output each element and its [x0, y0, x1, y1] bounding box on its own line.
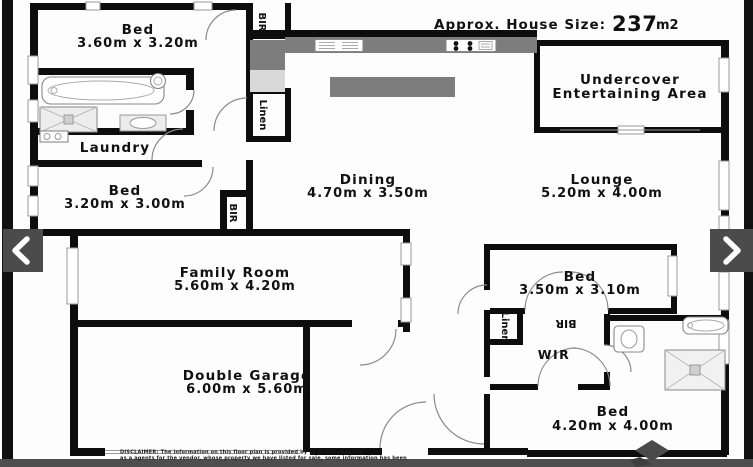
toilet-icon [614, 326, 644, 352]
room-label-laundry: Laundry [80, 140, 150, 156]
basin-icon [151, 74, 166, 89]
house-size-unit: m2 [656, 18, 679, 33]
room-label-bed4: Bed [597, 404, 630, 420]
ensuite-bath-icon [683, 317, 728, 334]
ensuite-shower-icon [665, 350, 725, 390]
floorplan-viewer: Approx. House Size: 237 m2 Bed 3.60m x 3… [0, 0, 753, 467]
house-size-label: Approx. House Size: [434, 17, 606, 33]
sink-icon [315, 40, 363, 52]
room-dims-dining: 4.70m x 3.50m [307, 186, 429, 201]
kitchen-fixtures [250, 37, 537, 97]
room-dims-bed3: 3.50m x 3.10m [519, 283, 641, 298]
disclaimer-line2: as a agents for the vendor, whose proper… [120, 456, 407, 462]
closet-label-linen-bed3: Linen [499, 312, 510, 343]
room-dims-bed4: 4.20m x 4.00m [552, 419, 674, 434]
prev-button[interactable] [3, 229, 43, 272]
closet-label-bir-bed2: BIR [227, 203, 238, 222]
room-dims-bed1: 3.60m x 3.20m [77, 36, 199, 51]
ensuite-fixtures [614, 317, 728, 390]
house-size-value: 237 [612, 12, 657, 36]
room-label-wir: WIR [538, 347, 571, 362]
room-dims-bed2: 3.20m x 3.00m [64, 197, 186, 212]
closet-label-linen-top: Linen [257, 100, 268, 131]
room-label-undercover-2: Entertaining Area [552, 86, 707, 102]
cooktop-icon [446, 40, 496, 52]
closet-label-bir-top: BIR [256, 12, 267, 31]
room-dims-garage: 6.00m x 5.60m [186, 382, 308, 397]
closet-label-bir-bed3: BIR [555, 317, 576, 330]
room-dims-family: 5.60m x 4.20m [174, 279, 296, 294]
wc-icon [40, 131, 68, 142]
shower-icon [40, 107, 97, 132]
next-button[interactable] [710, 229, 753, 272]
room-dims-lounge: 5.20m x 4.00m [541, 186, 663, 201]
laundry-trough-icon [120, 115, 166, 131]
